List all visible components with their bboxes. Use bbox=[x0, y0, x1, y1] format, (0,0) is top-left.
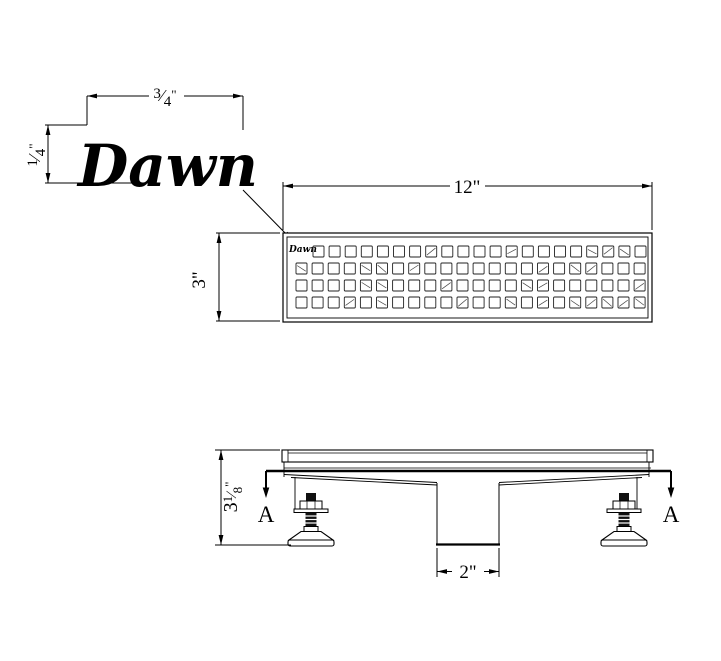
dim-arrow bbox=[217, 233, 222, 243]
dim-plate-depth: 3" bbox=[189, 271, 210, 288]
dim-numerator: 3 bbox=[153, 86, 161, 102]
dim-arrow bbox=[489, 569, 499, 574]
dim-arrow bbox=[217, 311, 222, 321]
dim-arrow bbox=[642, 184, 652, 189]
side-view: A A bbox=[215, 450, 680, 583]
dim-outlet-width: 2" bbox=[459, 562, 476, 583]
dim-body-height: 31⁄8" bbox=[220, 482, 245, 513]
section-label-right: A bbox=[663, 502, 680, 527]
section-line-a bbox=[263, 471, 675, 498]
brand-logo: Dawn bbox=[76, 132, 258, 200]
dim-arrow bbox=[233, 94, 243, 99]
dim-numerator: 1 bbox=[25, 159, 41, 167]
dim-arrow bbox=[219, 450, 224, 460]
dim-arrow bbox=[87, 94, 97, 99]
section-label-left: A bbox=[258, 502, 275, 527]
dim-logo-height: 1⁄4" bbox=[25, 143, 49, 166]
section-arrow bbox=[668, 488, 675, 499]
dim-plate-depth-lines bbox=[216, 233, 280, 321]
dim-logo-width: 3⁄4" bbox=[153, 86, 176, 110]
channel-underbody bbox=[284, 462, 649, 509]
dim-whole: 3 bbox=[220, 502, 242, 512]
top-view: Dawn 12" 3" bbox=[189, 177, 652, 322]
dim-arrow bbox=[46, 125, 51, 135]
dim-arrow bbox=[437, 569, 447, 574]
drawing-sheet: 3⁄4" 1⁄4" Dawn Dawn 12" 3" bbox=[0, 0, 721, 661]
drawing-canvas: 3⁄4" 1⁄4" Dawn Dawn 12" 3" bbox=[0, 0, 721, 661]
dim-unit: " bbox=[222, 482, 237, 487]
dim-arrow bbox=[219, 535, 224, 545]
dim-arrow bbox=[46, 173, 51, 183]
leveling-foot-right bbox=[601, 493, 647, 546]
dim-unit: " bbox=[171, 87, 176, 102]
dim-unit: " bbox=[26, 143, 41, 148]
dim-plate-width: 12" bbox=[454, 177, 481, 198]
drain-outlet bbox=[436, 483, 500, 545]
channel-flange bbox=[282, 450, 653, 462]
section-arrow bbox=[263, 488, 270, 499]
dim-arrow bbox=[283, 184, 293, 189]
